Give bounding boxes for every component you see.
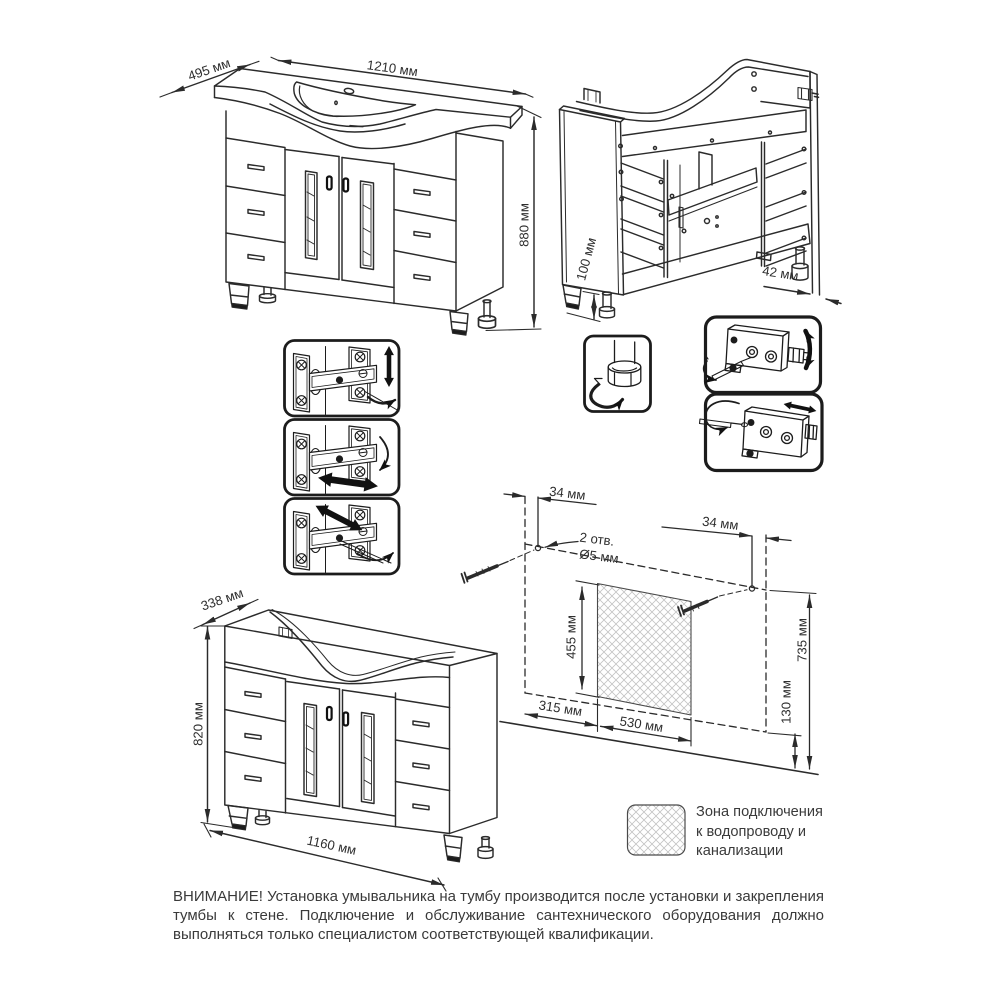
svg-text:100 мм: 100 мм bbox=[573, 236, 599, 282]
svg-text:820 мм: 820 мм bbox=[191, 702, 206, 746]
svg-text:34 мм: 34 мм bbox=[701, 514, 739, 533]
svg-text:338 мм: 338 мм bbox=[199, 585, 245, 613]
svg-text:455 мм: 455 мм bbox=[564, 615, 579, 659]
svg-text:880 мм: 880 мм bbox=[517, 203, 532, 247]
svg-text:315 мм: 315 мм bbox=[538, 697, 584, 719]
svg-text:42 мм: 42 мм bbox=[761, 263, 799, 284]
svg-text:Ø5 мм: Ø5 мм bbox=[579, 546, 620, 566]
svg-text:735 мм: 735 мм bbox=[795, 618, 810, 662]
svg-text:130 мм: 130 мм bbox=[779, 680, 794, 724]
svg-text:530 мм: 530 мм bbox=[619, 713, 665, 735]
